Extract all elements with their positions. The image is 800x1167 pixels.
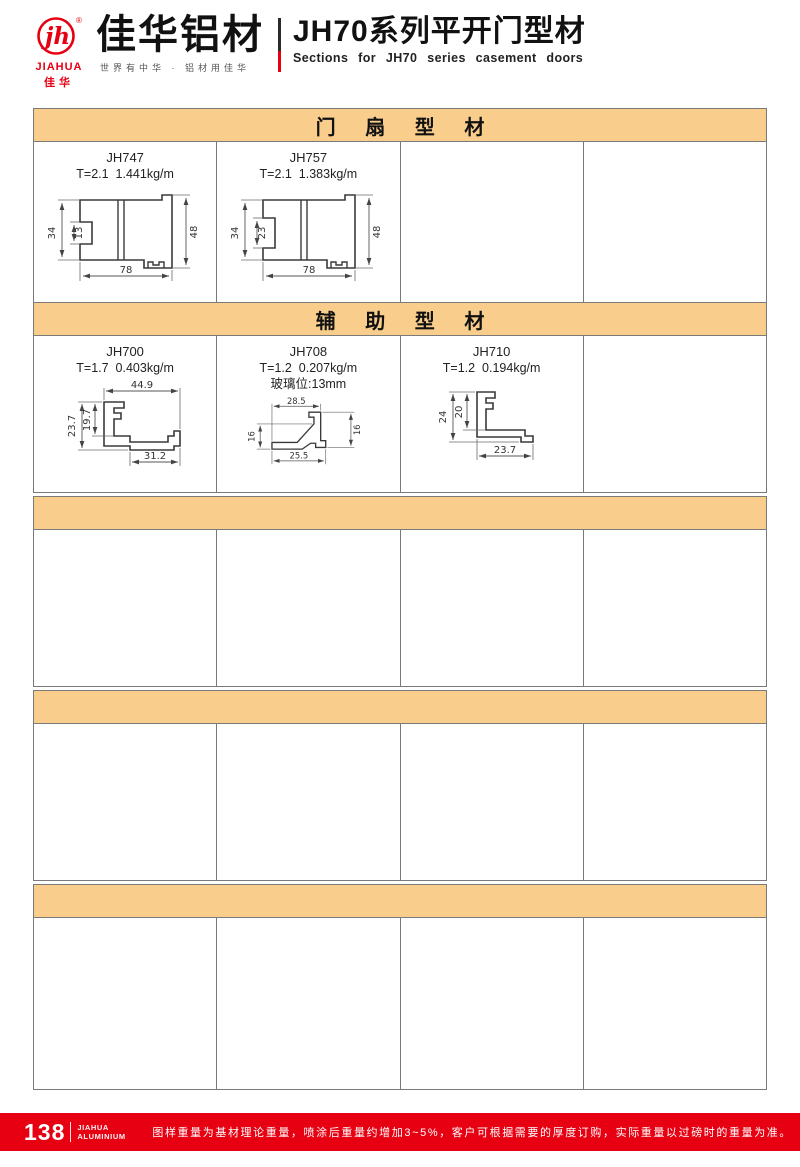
logo-monogram: jh <box>41 23 70 50</box>
profile-spec: T=1.2 0.207kg/m <box>217 360 399 376</box>
empty-cell <box>401 142 584 302</box>
profile-cell-jh757: JH757 T=2.1 1.383kg/m 34 <box>217 142 400 302</box>
profile-drawing-jh710: 24 20 23.7 <box>401 376 584 476</box>
company-name: 佳华铝材 <box>96 14 264 56</box>
profile-drawing-jh700: 44.9 23.7 19.7 31.2 <box>34 376 217 476</box>
svg-text:23.7: 23.7 <box>67 415 78 437</box>
series-title-block: JH70系列平开门型材 Sections for JH70 series cas… <box>293 15 586 65</box>
empty-cell <box>401 918 584 1089</box>
profile-code: JH708 <box>217 344 399 360</box>
svg-text:44.9: 44.9 <box>131 380 153 391</box>
profile-cell-jh708: JH708 T=1.2 0.207kg/m 玻璃位:13mm 28.5 16 <box>217 336 400 492</box>
profile-code: JH700 <box>34 344 216 360</box>
profile-drawing-jh757: 34 23 48 78 <box>217 182 400 287</box>
company-tagline: 世界有中华 · 铝材用佳华 <box>96 61 264 74</box>
logo-brand-cn: 佳华 <box>26 74 92 90</box>
profile-spec: T=2.1 1.441kg/m <box>34 166 216 182</box>
profile-note: 玻璃位:13mm <box>217 376 399 392</box>
section-title: 门 扇 型 材 <box>304 111 497 140</box>
svg-text:78: 78 <box>120 265 133 276</box>
footer-brand-line1: JIAHUA <box>77 1123 125 1132</box>
svg-text:25.5: 25.5 <box>290 450 309 460</box>
profile-catalog: 门 扇 型 材 JH747 T=2.1 1.441kg/m 34 <box>33 108 767 1090</box>
svg-text:34: 34 <box>47 227 58 240</box>
table-row: JH747 T=2.1 1.441kg/m 34 <box>34 142 766 303</box>
svg-text:16: 16 <box>247 431 257 442</box>
section-header-auxiliary: 辅 助 型 材 <box>34 303 766 336</box>
svg-text:19.7: 19.7 <box>82 409 93 431</box>
table-row: JH700 T=1.7 0.403kg/m 44.9 23.7 <box>34 336 766 492</box>
profile-spec: T=1.7 0.403kg/m <box>34 360 216 376</box>
footer-brand: JIAHUA ALUMINIUM <box>77 1123 125 1141</box>
profile-spec: T=1.2 0.194kg/m <box>401 360 583 376</box>
logo-brand-en: JIAHUA <box>26 61 92 73</box>
profile-code: JH710 <box>401 344 583 360</box>
table-row <box>34 724 766 880</box>
svg-text:78: 78 <box>303 265 316 276</box>
svg-text:16: 16 <box>352 424 362 435</box>
empty-cell <box>401 530 584 686</box>
empty-cell <box>217 918 400 1089</box>
profile-code: JH747 <box>34 150 216 166</box>
profile-drawing-jh747: 34 13 48 78 <box>34 182 217 287</box>
empty-cell <box>584 530 766 686</box>
svg-text:23: 23 <box>257 227 268 240</box>
empty-cell <box>401 724 584 880</box>
footer-note: 图样重量为基材理论重量，喷涂后重量约增加3~5%，客户可根据需要的厚度订购，实际… <box>152 1124 800 1140</box>
table-row <box>34 918 766 1089</box>
profile-drawing-jh708: 28.5 16 16 25.5 <box>217 392 400 476</box>
catalog-page: jh ® JIAHUA 佳华 佳华铝材 世界有中华 · 铝材用佳华 JH70系列… <box>0 0 800 1167</box>
empty-cell <box>217 724 400 880</box>
empty-cell <box>34 724 217 880</box>
svg-text:23.7: 23.7 <box>493 445 515 456</box>
svg-text:34: 34 <box>230 227 241 240</box>
empty-cell <box>34 530 217 686</box>
svg-text:13: 13 <box>74 227 85 240</box>
profile-spec: T=2.1 1.383kg/m <box>217 166 399 182</box>
profile-cell-jh747: JH747 T=2.1 1.441kg/m 34 <box>34 142 217 302</box>
section-header-empty <box>34 691 766 724</box>
profile-cell-jh710: JH710 T=1.2 0.194kg/m 24 20 <box>401 336 584 492</box>
svg-text:48: 48 <box>372 226 383 239</box>
profile-table-empty-2 <box>33 690 767 881</box>
svg-text:48: 48 <box>189 226 200 239</box>
empty-cell <box>217 530 400 686</box>
section-header-door-sash: 门 扇 型 材 <box>34 109 766 142</box>
svg-text:31.2: 31.2 <box>144 451 166 462</box>
jiahua-logo-emblem: jh ® <box>31 14 87 58</box>
table-row <box>34 530 766 686</box>
svg-text:24: 24 <box>438 411 449 424</box>
svg-text:28.5: 28.5 <box>287 396 306 406</box>
svg-text:20: 20 <box>454 406 465 419</box>
footer-divider <box>70 1122 71 1142</box>
profile-cell-jh700: JH700 T=1.7 0.403kg/m 44.9 23.7 <box>34 336 217 492</box>
page-footer: 138 JIAHUA ALUMINIUM 图样重量为基材理论重量，喷涂后重量约增… <box>0 1113 800 1151</box>
registered-mark-icon: ® <box>76 16 82 25</box>
section-header-empty <box>34 497 766 530</box>
section-header-empty <box>34 885 766 918</box>
footer-brand-line2: ALUMINIUM <box>77 1132 125 1141</box>
section-title: 辅 助 型 材 <box>304 305 497 334</box>
header-divider <box>278 18 281 72</box>
profile-table-main: 门 扇 型 材 JH747 T=2.1 1.441kg/m 34 <box>33 108 767 493</box>
series-title-en: Sections for JH70 series casement doors <box>293 51 586 65</box>
brand-block: 佳华铝材 世界有中华 · 铝材用佳华 <box>96 14 264 74</box>
empty-cell <box>34 918 217 1089</box>
series-title-cn: JH70系列平开门型材 <box>293 15 586 48</box>
profile-code: JH757 <box>217 150 399 166</box>
brand-logo: jh ® JIAHUA 佳华 <box>26 14 92 90</box>
page-header: jh ® JIAHUA 佳华 佳华铝材 世界有中华 · 铝材用佳华 JH70系列… <box>26 14 586 90</box>
profile-table-empty-3 <box>33 884 767 1090</box>
empty-cell <box>584 918 766 1089</box>
profile-table-empty-1 <box>33 496 767 687</box>
empty-cell <box>584 336 766 492</box>
page-number: 138 <box>0 1119 65 1146</box>
empty-cell <box>584 724 766 880</box>
empty-cell <box>584 142 766 302</box>
